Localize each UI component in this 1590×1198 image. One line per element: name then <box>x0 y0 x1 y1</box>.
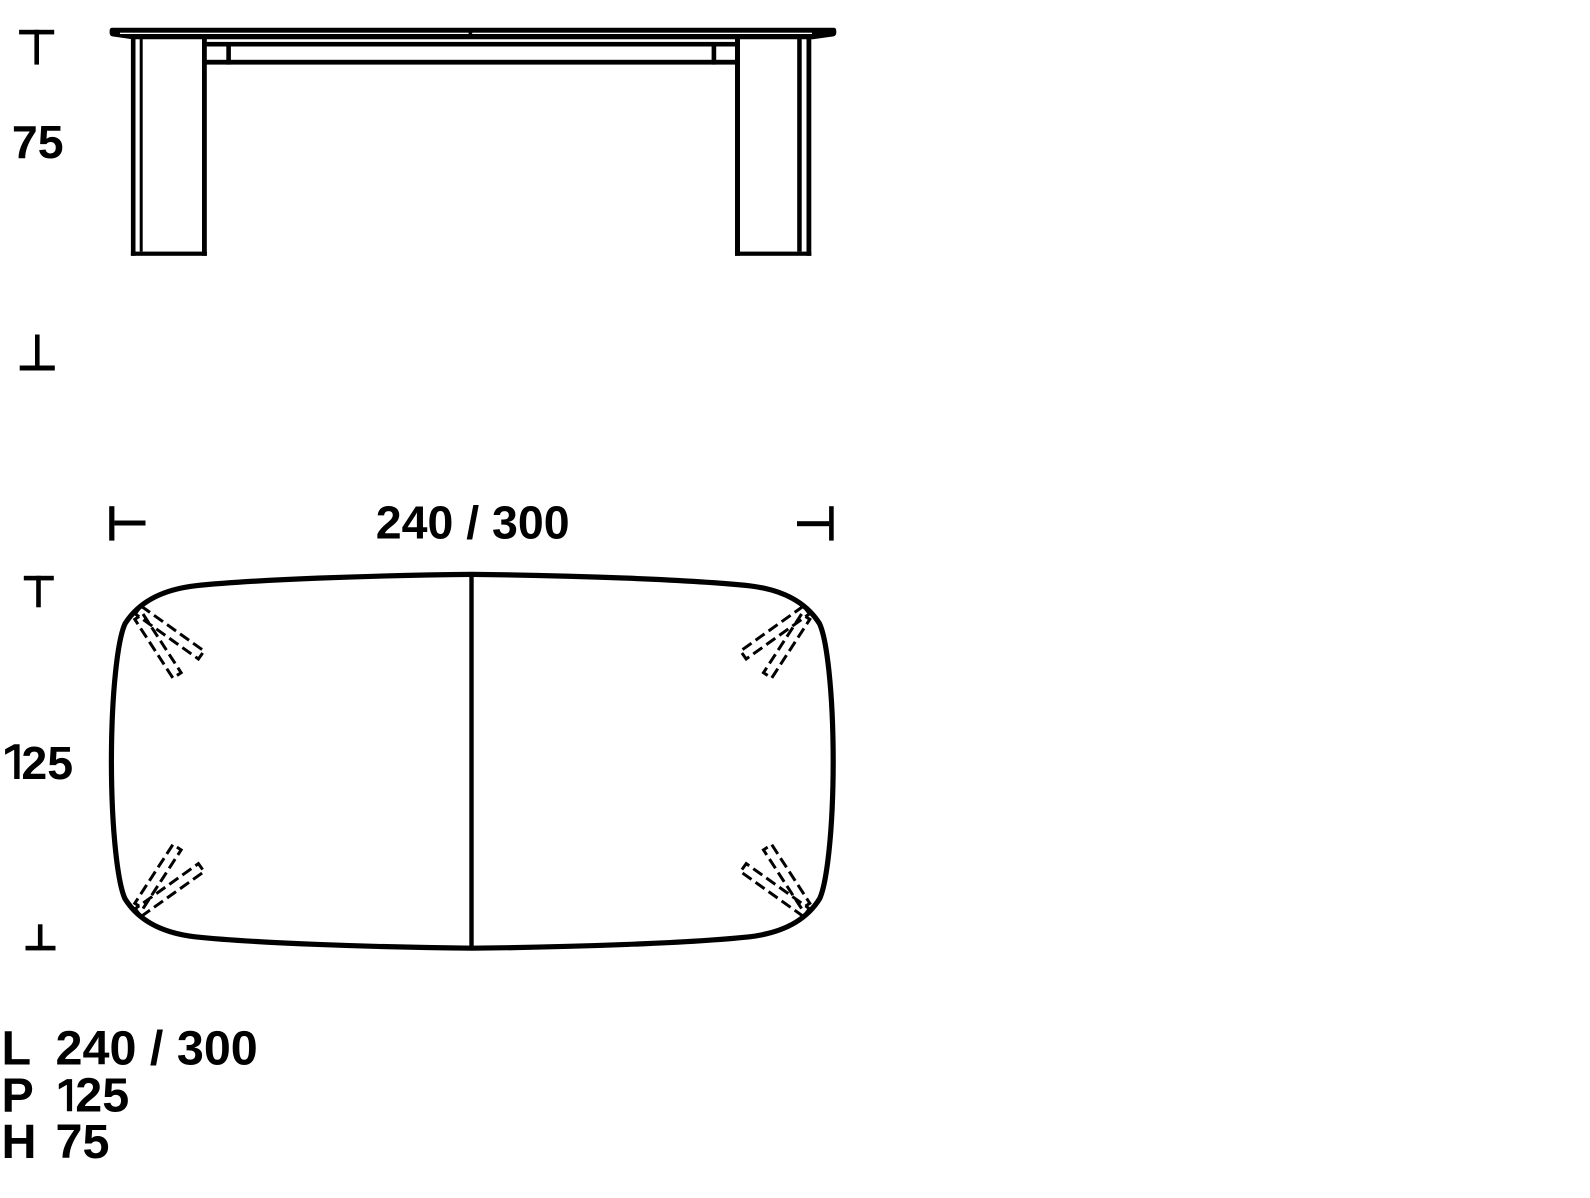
svg-text:H: H <box>2 1115 37 1169</box>
svg-text:25: 25 <box>21 737 73 789</box>
svg-text:240 / 300: 240 / 300 <box>376 497 570 549</box>
svg-text:75: 75 <box>56 1115 110 1169</box>
svg-text:75: 75 <box>12 116 64 168</box>
